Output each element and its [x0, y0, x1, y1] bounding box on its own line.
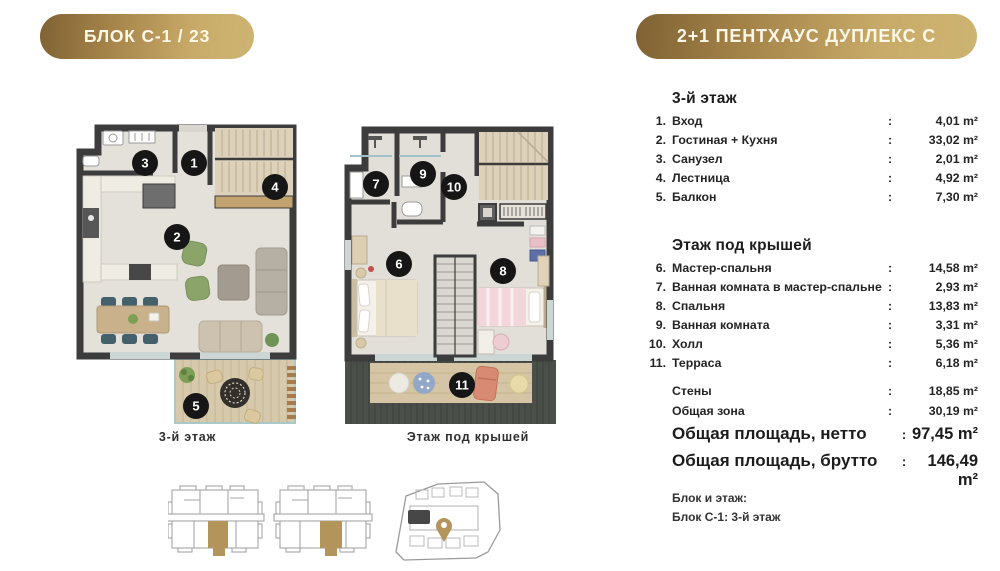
- row-name: Холл: [672, 337, 884, 351]
- balcony-plant: [179, 367, 195, 383]
- row-name: Лестница: [672, 171, 884, 185]
- row-number: 8.: [648, 299, 666, 313]
- row-colon: :: [884, 133, 896, 147]
- row-value: 5,36 m²: [896, 337, 978, 351]
- row-name: Вход: [672, 114, 884, 128]
- svg-text:2: 2: [173, 230, 180, 245]
- unit-type-badge: 2+1 ПЕНТХАУС ДУПЛЕКС С: [636, 14, 977, 59]
- block-badge-label: БЛОК С-1 / 23: [84, 26, 210, 47]
- terrace-pouf-yellow: [510, 375, 528, 393]
- svg-text:3: 3: [141, 156, 148, 171]
- row-colon: :: [884, 356, 896, 370]
- area-row: 11.Терраса:6,18 m²: [648, 356, 978, 375]
- entrance-door-opening: [179, 125, 207, 132]
- svg-text:7: 7: [372, 177, 379, 192]
- block-badge: БЛОК С-1 / 23: [40, 14, 254, 59]
- section-title-attic: Этаж под крышей: [648, 237, 978, 255]
- row-value: 3,31 m²: [896, 318, 978, 332]
- row-number: 5.: [648, 190, 666, 204]
- key-plans: [168, 474, 508, 566]
- block-floor-note: Блок и этаж: Блок С-1: 3-й этаж: [672, 489, 780, 527]
- terrace-pouf-white: [389, 373, 409, 393]
- site-dark-block: [408, 510, 430, 524]
- total-row-net: Общая площадь, нетто:97,45 m²: [648, 424, 978, 451]
- desk: [478, 330, 494, 354]
- area-rows-floor3: 1.Вход:4,01 m² 2.Гостиная + Кухня:33,02 …: [648, 114, 978, 209]
- row-number: 7.: [648, 280, 666, 294]
- section-title: Этаж под крышей: [672, 237, 978, 255]
- area-row: 8.Спальня:13,83 m²: [648, 299, 978, 318]
- area-row: 10.Холл:5,36 m²: [648, 337, 978, 356]
- coffee-table: [218, 265, 249, 300]
- terrace-lounge-chair: [473, 366, 499, 401]
- row-name: Стены: [672, 384, 884, 398]
- svg-text:6: 6: [395, 257, 402, 272]
- desk-chair: [493, 334, 509, 350]
- row-colon: :: [884, 318, 896, 332]
- floorplan-3rd-floor: 1 2 3 4 5: [63, 116, 299, 430]
- floorplan-3rd-floor-label: 3-й этаж: [115, 430, 260, 444]
- row-colon: :: [884, 261, 896, 275]
- row-number: 2.: [648, 133, 666, 147]
- svg-text:5: 5: [192, 399, 199, 414]
- row-value: 30,19 m²: [896, 404, 978, 418]
- plant: [265, 333, 279, 347]
- row-name: Ванная комната в мастер-спальне: [672, 280, 884, 294]
- room-marker-2: 2: [164, 224, 190, 250]
- block-floor-note-value: Блок С-1: 3-й этаж: [672, 508, 780, 527]
- keyplan-building-1: [168, 486, 264, 556]
- room-marker-4: 4: [262, 174, 288, 200]
- area-row: Стены:18,85 m²: [648, 384, 978, 404]
- row-name: Ванная комната: [672, 318, 884, 332]
- room-marker-7: 7: [363, 171, 389, 197]
- cooktop: [129, 264, 151, 280]
- sofa-right: [256, 248, 287, 315]
- area-row: 6.Мастер-спальня:14,58 m²: [648, 261, 978, 280]
- row-value: 18,85 m²: [896, 384, 978, 398]
- row-colon: :: [898, 454, 910, 469]
- section-title-floor3: 3-й этаж: [648, 90, 978, 108]
- row-number: 4.: [648, 171, 666, 185]
- wardrobe: [352, 236, 367, 264]
- keyplan-site: [396, 482, 500, 560]
- row-name: Общая площадь, брутто: [672, 451, 898, 471]
- room-marker-6: 6: [386, 251, 412, 277]
- room-marker-11: 11: [449, 372, 475, 398]
- svg-text:1: 1: [190, 156, 197, 171]
- row-colon: :: [884, 404, 896, 418]
- area-row: 4.Лестница:4,92 m²: [648, 171, 978, 190]
- row-name: Балкон: [672, 190, 884, 204]
- window: [200, 352, 270, 359]
- svg-text:10: 10: [447, 180, 461, 195]
- row-number: 1.: [648, 114, 666, 128]
- total-row-gross: Общая площадь, брутто:146,49 m²: [648, 451, 978, 478]
- floorplan-attic: 6 7 8 9 10 11: [342, 116, 558, 430]
- area-row: 1.Вход:4,01 m²: [648, 114, 978, 133]
- sofa-bottom: [199, 321, 262, 352]
- row-name: Терраса: [672, 356, 884, 370]
- room-marker-8: 8: [490, 258, 516, 284]
- row-name: Гостиная + Кухня: [672, 133, 884, 147]
- room-marker-9: 9: [410, 161, 436, 187]
- dresser: [538, 256, 549, 286]
- window: [547, 300, 553, 340]
- sink-unit: [83, 208, 99, 238]
- row-value: 2,01 m²: [896, 152, 978, 166]
- row-name: Санузел: [672, 152, 884, 166]
- row-value: 2,93 m²: [896, 280, 978, 294]
- row-name: Общая зона: [672, 404, 884, 418]
- area-row: 5.Балкон:7,30 m²: [648, 190, 978, 209]
- row-name: Общая площадь, нетто: [672, 424, 898, 444]
- stairs: [479, 132, 548, 200]
- row-colon: :: [884, 280, 896, 294]
- balcony-round-table: [220, 378, 250, 408]
- row-colon: :: [898, 427, 910, 442]
- stair-void: [435, 256, 475, 356]
- row-value: 4,92 m²: [896, 171, 978, 185]
- svg-text:9: 9: [419, 167, 426, 182]
- unit-type-badge-label: 2+1 ПЕНТХАУС ДУПЛЕКС С: [677, 26, 936, 47]
- row-value: 4,01 m²: [896, 114, 978, 128]
- area-row: 2.Гостиная + Кухня:33,02 m²: [648, 133, 978, 152]
- row-value: 6,18 m²: [896, 356, 978, 370]
- row-value: 14,58 m²: [896, 261, 978, 275]
- bed-pink: [478, 286, 545, 328]
- row-value: 33,02 m²: [896, 133, 978, 147]
- floorplan-attic-label: Этаж под крышей: [398, 430, 538, 444]
- room-marker-3: 3: [132, 150, 158, 176]
- row-value: 146,49 m²: [910, 452, 978, 490]
- closet: [479, 204, 546, 221]
- svg-text:11: 11: [455, 378, 469, 393]
- window: [345, 240, 351, 270]
- row-colon: :: [884, 152, 896, 166]
- window: [110, 352, 170, 359]
- row-name: Мастер-спальня: [672, 261, 884, 275]
- row-colon: :: [884, 299, 896, 313]
- area-row: 7.Ванная комната в мастер-спальне:2,93 m…: [648, 280, 978, 299]
- row-number: 6.: [648, 261, 666, 275]
- area-row: 9.Ванная комната:3,31 m²: [648, 318, 978, 337]
- row-name: Спальня: [672, 299, 884, 313]
- kitchen-island: [143, 184, 175, 208]
- keyplan-building-2: [274, 486, 372, 556]
- window: [375, 354, 437, 361]
- room-marker-10: 10: [441, 174, 467, 200]
- row-number: 10.: [648, 337, 666, 351]
- row-value: 97,45 m²: [910, 425, 978, 444]
- row-colon: :: [884, 337, 896, 351]
- area-totals: Общая площадь, нетто:97,45 m² Общая площ…: [648, 424, 978, 478]
- room-marker-1: 1: [181, 150, 207, 176]
- row-number: 11.: [648, 356, 666, 370]
- room-marker-5: 5: [183, 393, 209, 419]
- row-colon: :: [884, 171, 896, 185]
- section-title: 3-й этаж: [672, 90, 978, 108]
- row-number: 3.: [648, 152, 666, 166]
- row-number: 9.: [648, 318, 666, 332]
- row-value: 7,30 m²: [896, 190, 978, 204]
- block-floor-note-label: Блок и этаж:: [672, 489, 780, 508]
- terrace-pouf-blue: [413, 372, 435, 394]
- svg-text:4: 4: [271, 180, 279, 195]
- svg-text:8: 8: [499, 264, 506, 279]
- area-rows-attic: 6.Мастер-спальня:14,58 m² 7.Ванная комна…: [648, 261, 978, 375]
- area-extras: Стены:18,85 m² Общая зона:30,19 m²: [648, 384, 978, 423]
- area-row: 3.Санузел:2,01 m²: [648, 152, 978, 171]
- row-colon: :: [884, 114, 896, 128]
- terrace-area: [345, 360, 556, 424]
- brochure-page: БЛОК С-1 / 23 2+1 ПЕНТХАУС ДУПЛЕКС С: [0, 0, 1000, 571]
- row-value: 13,83 m²: [896, 299, 978, 313]
- area-row: Общая зона:30,19 m²: [648, 404, 978, 424]
- row-colon: :: [884, 384, 896, 398]
- master-bed: [352, 279, 417, 337]
- row-colon: :: [884, 190, 896, 204]
